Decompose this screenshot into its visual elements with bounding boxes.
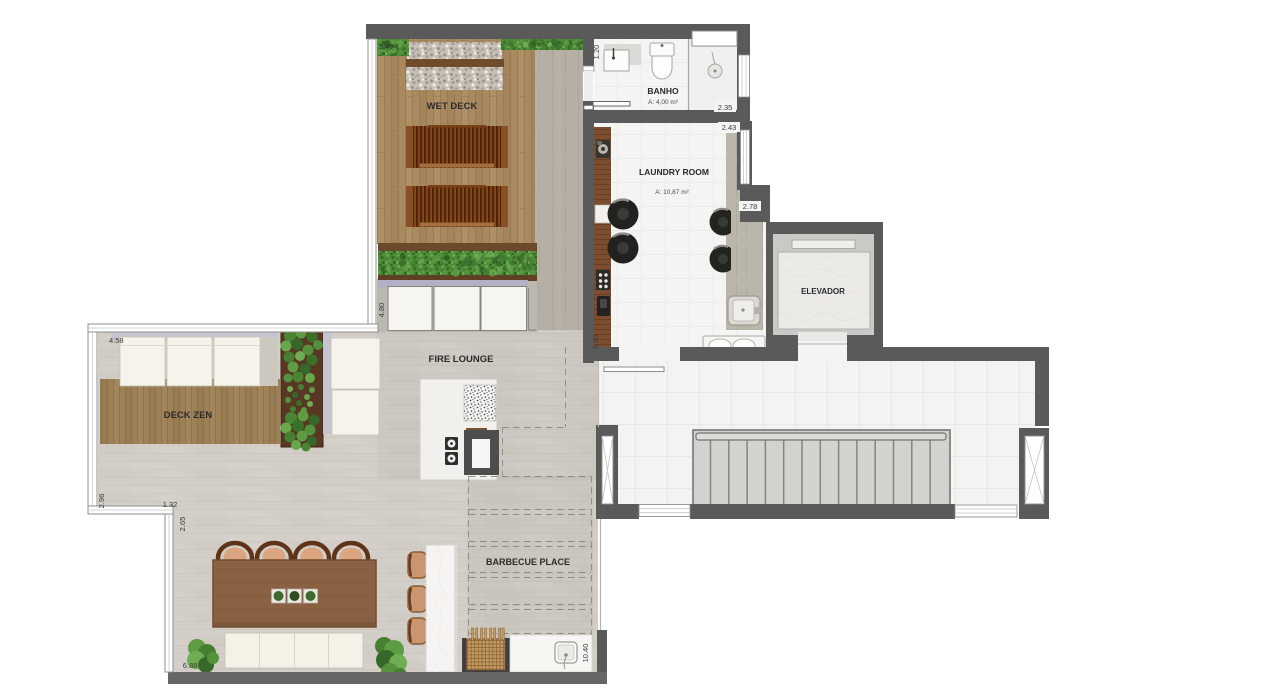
svg-text:A: 4,00 m²: A: 4,00 m² (648, 99, 679, 106)
svg-text:6.88: 6.88 (183, 661, 198, 670)
svg-text:LAUNDRY ROOM: LAUNDRY ROOM (639, 167, 709, 177)
svg-text:4.80: 4.80 (377, 303, 386, 318)
svg-text:2.43: 2.43 (722, 123, 737, 132)
svg-text:3.80: 3.80 (591, 335, 600, 350)
svg-text:10.40: 10.40 (581, 644, 590, 663)
svg-text:3.40: 3.40 (379, 42, 394, 51)
svg-text:4.58: 4.58 (109, 336, 124, 345)
svg-text:FIRE LOUNGE: FIRE LOUNGE (429, 354, 494, 365)
svg-text:WET DECK: WET DECK (427, 101, 478, 112)
svg-text:2.35: 2.35 (718, 103, 733, 112)
svg-text:2.96: 2.96 (97, 494, 106, 509)
svg-text:BANHO: BANHO (647, 86, 679, 96)
svg-text:A: 10,87 m²: A: 10,87 m² (655, 189, 689, 196)
svg-text:1.32: 1.32 (163, 500, 178, 509)
svg-text:DECK ZEN: DECK ZEN (164, 410, 213, 421)
svg-text:ELEVADOR: ELEVADOR (801, 287, 845, 296)
svg-text:2.78: 2.78 (743, 202, 758, 211)
svg-text:BARBECUE PLACE: BARBECUE PLACE (486, 557, 570, 567)
svg-text:2.65: 2.65 (178, 517, 187, 532)
svg-text:1.20: 1.20 (592, 45, 601, 60)
